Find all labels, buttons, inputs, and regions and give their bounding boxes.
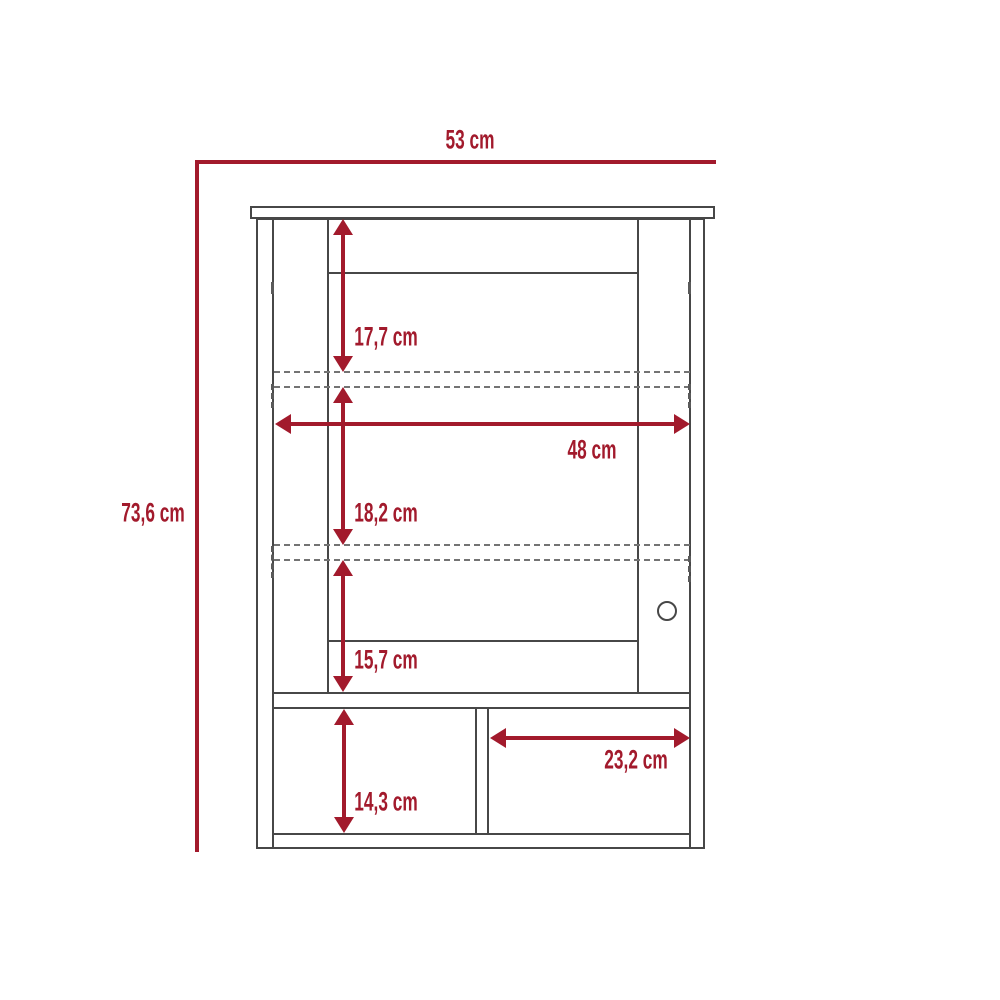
- open-shelf-divider-right-line: [487, 709, 489, 835]
- overall-height-extension-line: [195, 160, 199, 852]
- dimension-diagram: 53 cm 73,6 cm 17,7 cm 48 cm 18,2 cm 15,7…: [0, 0, 1000, 1000]
- door-right-stile-line: [637, 219, 639, 694]
- shelf-pin-marks-left-3: [271, 546, 274, 578]
- cabinet-bottom-line: [256, 847, 705, 849]
- open-shelf-divider-left-line: [475, 709, 477, 835]
- dim-label-open-shelf-height: 14,3 cm: [354, 789, 417, 816]
- dim-label-open-shelf-width: 23,2 cm: [604, 747, 667, 774]
- dim-label-middle-section: 18,2 cm: [354, 500, 417, 527]
- cabinet-left-side-outer-line: [256, 219, 258, 849]
- shelf-pin-marks-left-2: [271, 384, 274, 408]
- shelf-pin-marks-left-1: [271, 282, 274, 294]
- door-left-stile-line: [327, 219, 329, 694]
- dim-label-upper-section: 17,7 cm: [354, 324, 417, 351]
- middle-divider-top-line: [273, 692, 690, 694]
- dim-label-overall-width: 53 cm: [446, 127, 495, 154]
- dim-label-overall-height: 73,6 cm: [121, 500, 184, 527]
- dim-label-lower-section: 15,7 cm: [354, 647, 417, 674]
- overall-width-extension-line: [197, 160, 716, 164]
- door-top-rail-line: [328, 272, 638, 274]
- dim-label-interior-width: 48 cm: [568, 437, 617, 464]
- shelf-pin-marks-right-1: [688, 282, 691, 294]
- open-shelf-floor-line: [273, 833, 690, 835]
- cabinet-left-side-inner-line: [272, 219, 274, 849]
- door-bottom-rail-line: [328, 640, 638, 642]
- door-knob: [657, 601, 677, 621]
- shelf-pin-marks-right-2: [688, 384, 691, 408]
- cabinet-right-side-inner-line: [689, 219, 691, 849]
- shelf-pin-marks-right-3: [688, 556, 691, 582]
- cabinet-right-side-outer-line: [703, 219, 705, 849]
